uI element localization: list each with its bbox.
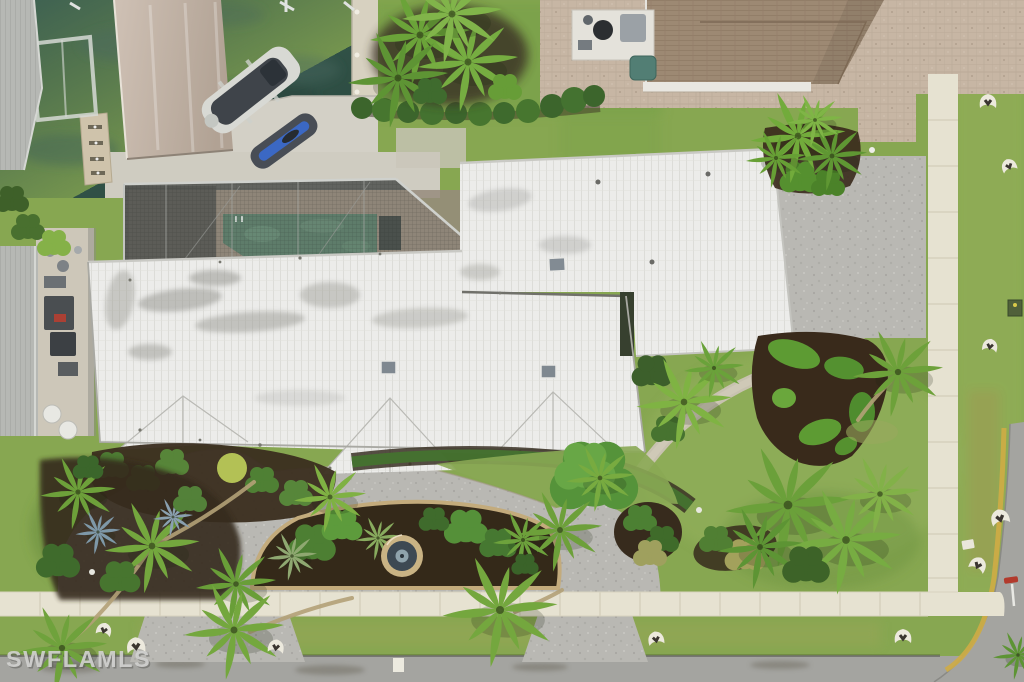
fountain [381, 535, 423, 577]
golden-shrub [217, 453, 247, 483]
ac-unit [44, 296, 74, 330]
watermark-text: SWFLAMLS [6, 646, 151, 672]
sprinkler-head [696, 507, 702, 513]
sprinkler-head [869, 147, 875, 153]
utility-pad [393, 658, 404, 672]
pool-heater [630, 56, 656, 80]
grill [44, 276, 66, 288]
sprinkler-head [89, 569, 95, 575]
utility-box [1008, 300, 1022, 316]
neighbor-gutter [643, 82, 811, 92]
aerial-photo-canvas: SWFLAMLS SWFLAMLS [0, 0, 1024, 682]
sidewalk-vertical [928, 74, 958, 602]
propane-tank [59, 421, 77, 439]
watermark: SWFLAMLS SWFLAMLS [6, 646, 153, 674]
aerial-photo: SWFLAMLS SWFLAMLS [0, 0, 1024, 682]
ac-unit [50, 332, 76, 356]
red-toolbox [54, 314, 66, 322]
side-yard-equipment [36, 228, 96, 439]
propane-tank [43, 405, 61, 423]
